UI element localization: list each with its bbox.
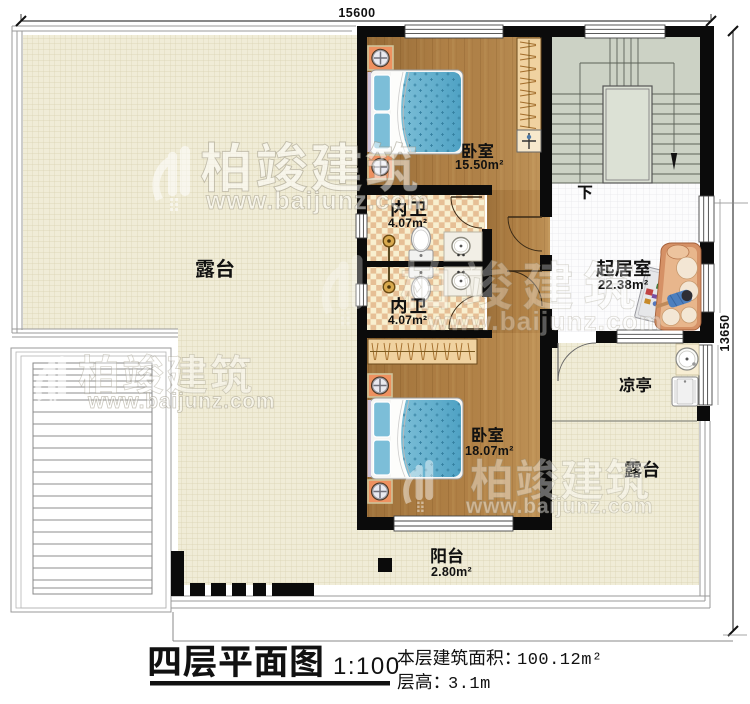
svg-text:4.07m²: 4.07m² bbox=[388, 313, 427, 327]
svg-text:www.baijunz.com: www.baijunz.com bbox=[427, 306, 663, 336]
svg-text:15.50m²: 15.50m² bbox=[455, 158, 504, 172]
svg-text:100.12m²: 100.12m² bbox=[517, 651, 603, 670]
svg-text:4.07m²: 4.07m² bbox=[388, 216, 427, 230]
svg-text:18.07m²: 18.07m² bbox=[465, 444, 514, 458]
svg-text:www.baijunz.com: www.baijunz.com bbox=[465, 495, 653, 518]
svg-text:1:100: 1:100 bbox=[333, 653, 401, 680]
svg-text:www.baijunz.com: www.baijunz.com bbox=[87, 390, 275, 413]
svg-text:www.baijunz.com: www.baijunz.com bbox=[205, 187, 430, 215]
svg-text:13650: 13650 bbox=[718, 314, 732, 351]
svg-text:3.1m: 3.1m bbox=[448, 675, 491, 694]
svg-text:2.80m²: 2.80m² bbox=[431, 565, 472, 579]
svg-text:15600: 15600 bbox=[338, 6, 375, 20]
